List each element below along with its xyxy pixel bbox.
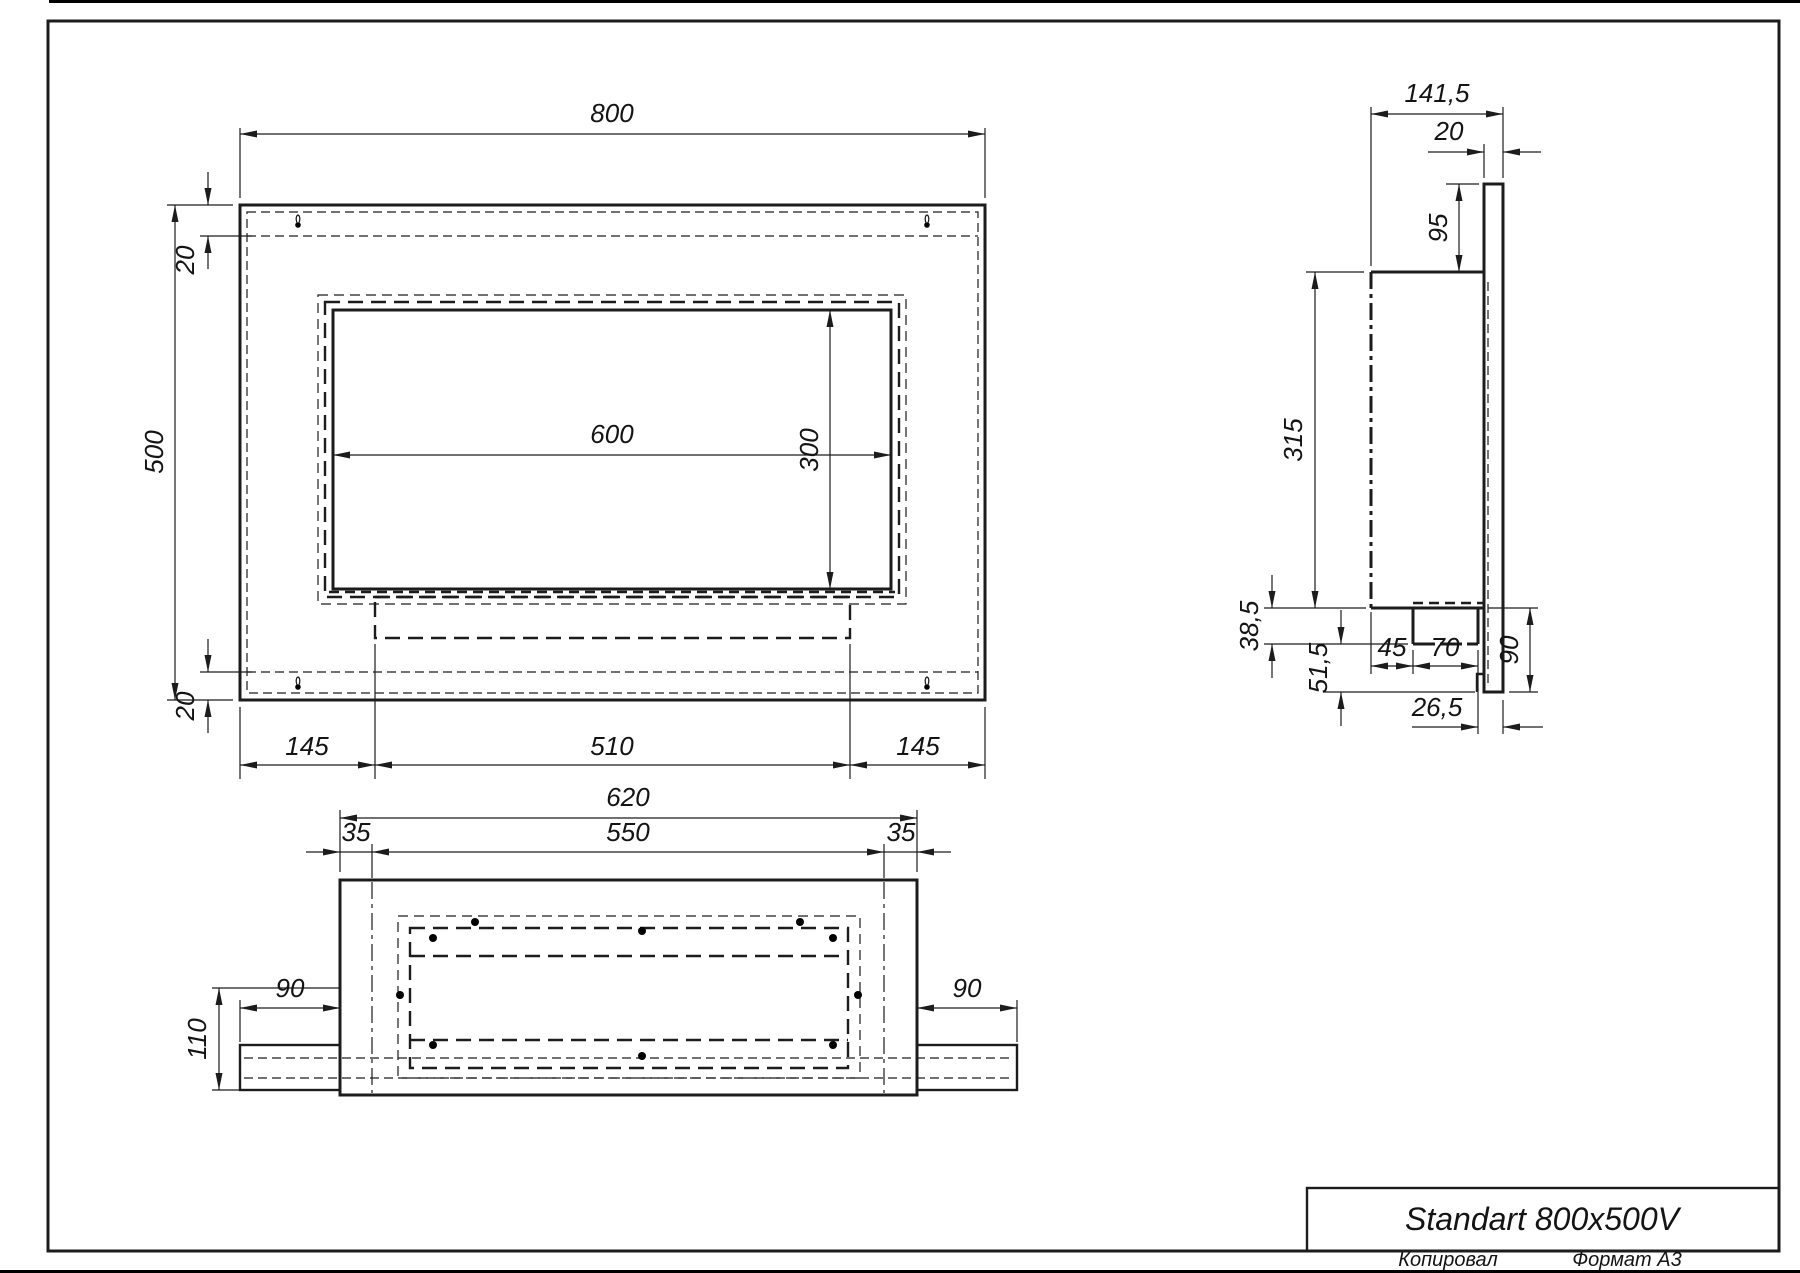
dim-front-margin-right: 145 — [896, 731, 940, 761]
dim-side-tray-front-offset: 45 — [1378, 632, 1407, 662]
technical-drawing: 800 500 20 20 600 300 145 510 145 — [0, 0, 1800, 1273]
dim-bottom-fold-left: 35 — [342, 817, 371, 847]
dim-side-tray-width: 70 — [1431, 632, 1460, 662]
dim-side-lower-gap: 51,5 — [1303, 642, 1333, 693]
bottom-hidden-frame-inner — [410, 928, 848, 1068]
dim-front-opening-width: 600 — [590, 419, 634, 449]
drawing-title: Standart 800x500V — [1405, 1201, 1682, 1237]
dim-side-tray-depth: 38,5 — [1234, 600, 1264, 651]
top-scan-bar — [49, 0, 1800, 3]
dim-bottom-wing-right: 90 — [953, 973, 982, 1003]
bottom-right-wing — [917, 1045, 1017, 1090]
bottom-left-wing — [240, 1045, 340, 1090]
dim-bottom-wing-left: 90 — [276, 973, 305, 1003]
front-dimension-lines — [175, 134, 985, 765]
front-tray-hidden — [375, 597, 850, 638]
front-back-panel-hidden — [247, 212, 978, 693]
format-label: Формат А3 — [1572, 1249, 1681, 1271]
dim-front-fold-top: 20 — [170, 245, 200, 275]
dim-side-back-offset: 26,5 — [1411, 692, 1463, 722]
dim-front-width: 800 — [590, 98, 634, 128]
drawing-sheet: 800 500 20 20 600 300 145 510 145 — [0, 0, 1800, 1273]
dim-front-opening-height: 300 — [794, 428, 824, 472]
dim-bottom-panel-width: 620 — [606, 782, 650, 812]
dim-bottom-depth: 110 — [182, 1018, 212, 1060]
title-block-texts: Standart 800x500V Копировал Формат А3 — [1398, 1201, 1681, 1271]
side-wall-plate — [1484, 184, 1503, 692]
dim-front-margin-left: 145 — [285, 731, 329, 761]
front-outer-panel — [240, 205, 985, 700]
bottom-view: 620 550 35 35 110 90 90 — [182, 782, 1017, 1095]
bottom-screw-holes — [396, 918, 862, 1060]
dim-side-hook-height: 90 — [1494, 635, 1524, 664]
dim-side-body-height: 315 — [1278, 418, 1308, 462]
front-extension-lines — [167, 128, 985, 779]
side-view: 141,5 20 95 315 38,5 51,5 45 70 90 26,5 — [1234, 78, 1543, 734]
bottom-main-outline — [340, 880, 917, 1095]
front-view: 800 500 20 20 600 300 145 510 145 — [139, 98, 985, 779]
dim-bottom-fold-right: 35 — [887, 817, 916, 847]
dim-front-tray-width: 510 — [590, 731, 634, 761]
keyhole-slot-icon — [295, 215, 930, 690]
dim-side-top-offset: 95 — [1423, 213, 1453, 242]
dim-side-depth: 141,5 — [1404, 78, 1470, 108]
copied-label: Копировал — [1398, 1249, 1497, 1271]
dim-front-height: 500 — [139, 430, 169, 474]
dim-bottom-inner-width: 550 — [606, 817, 650, 847]
dim-side-plate-thickness: 20 — [1434, 116, 1464, 146]
dim-front-fold-bottom: 20 — [170, 691, 200, 721]
bottom-hidden-frame-outer — [398, 916, 860, 1078]
